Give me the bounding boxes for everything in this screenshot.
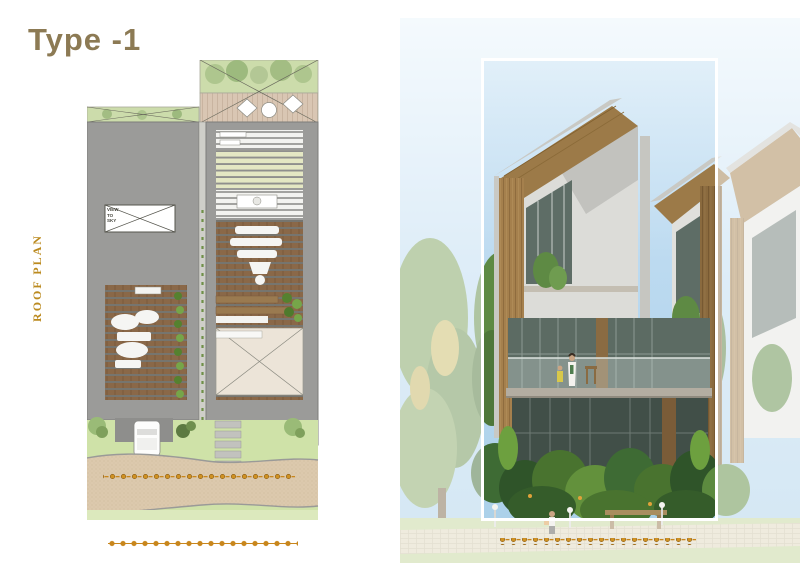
green-strip-left: [87, 107, 199, 122]
page-title: Type -1: [28, 22, 141, 58]
boundary-line-in-render: [500, 538, 696, 545]
car: [134, 421, 160, 456]
roof-gap-corridor: [199, 122, 206, 445]
building-render-svg: [400, 18, 800, 563]
view-to-sky-label: VIEW TO SKY: [107, 207, 137, 231]
boundary-line-in-plan: [103, 474, 295, 481]
roof-terrace: [200, 60, 318, 123]
bath-area: [216, 328, 303, 395]
roof-plan-svg: [87, 60, 319, 520]
glass-facade: [506, 318, 712, 478]
roof-plan-drawing: [87, 60, 319, 520]
roof-plan-label: ROOF PLAN: [30, 228, 46, 328]
stepping-stones: [215, 421, 241, 468]
roof-wing-left: [87, 122, 199, 420]
roof-wing-right: [206, 122, 318, 445]
brochure-page: Type -1 ROOF PLAN: [0, 0, 803, 574]
building-render: [400, 18, 800, 563]
left-louver-skylight: [105, 285, 187, 400]
boundary-line-bottom: [108, 540, 298, 547]
garden: [87, 417, 318, 520]
